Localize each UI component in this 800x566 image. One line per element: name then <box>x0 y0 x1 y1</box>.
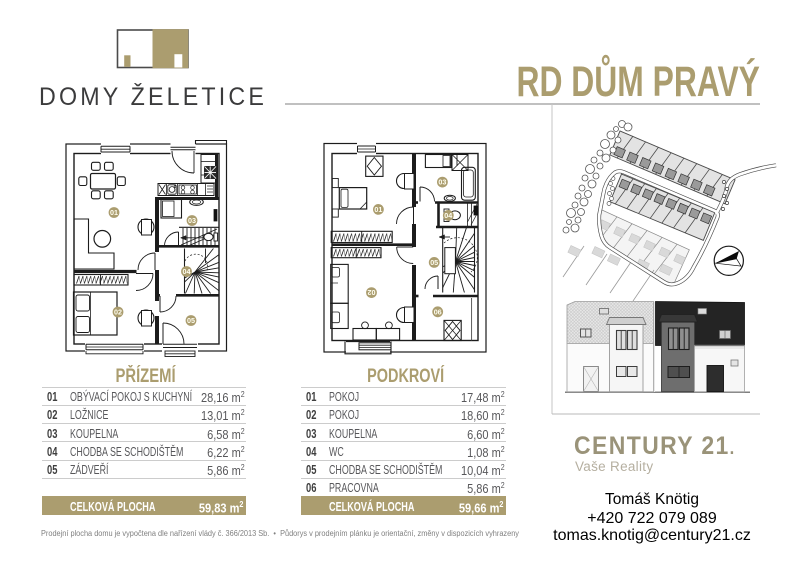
svg-text:06: 06 <box>434 307 442 316</box>
svg-text:04: 04 <box>183 267 191 276</box>
svg-text:02: 02 <box>368 288 376 297</box>
svg-text:03: 03 <box>188 216 196 225</box>
svg-text:05: 05 <box>430 258 438 267</box>
svg-text:01: 01 <box>110 208 118 217</box>
svg-text:01: 01 <box>374 205 382 214</box>
svg-text:02: 02 <box>114 308 122 317</box>
svg-text:04: 04 <box>444 211 452 220</box>
svg-text:05: 05 <box>187 316 195 325</box>
svg-text:03: 03 <box>438 178 446 187</box>
